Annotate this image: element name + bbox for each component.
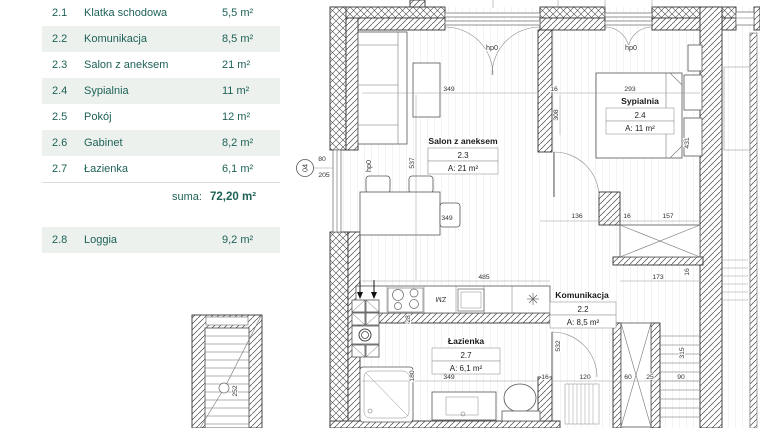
dim-label: 16 bbox=[684, 268, 691, 276]
dim-label: 180 bbox=[409, 370, 416, 382]
kitchen-counter bbox=[356, 286, 550, 313]
dim-label: 349 bbox=[443, 374, 455, 381]
room-no: 2.4 bbox=[634, 111, 646, 120]
window-top-right bbox=[736, 12, 754, 25]
marker-label: 04 bbox=[301, 164, 310, 172]
dim-label: 25 bbox=[646, 374, 654, 381]
dim-label: 485 bbox=[478, 274, 490, 281]
dim-label: 173 bbox=[652, 274, 664, 281]
dim-label: 16 bbox=[541, 374, 549, 381]
section-marker: 04 bbox=[297, 160, 314, 177]
nightstand bbox=[684, 75, 702, 110]
dim-label: 16 bbox=[550, 86, 558, 93]
vanity-sink bbox=[432, 392, 496, 420]
floor-plan-drawing: 252 04 80 205 537 349 16 293 bbox=[0, 0, 760, 428]
dim-label: 308 bbox=[553, 109, 560, 121]
room-area: A: 11 m² bbox=[625, 124, 655, 133]
dim-label: 80 bbox=[318, 156, 326, 163]
room-no: 2.2 bbox=[577, 305, 589, 314]
dim-label: 431 bbox=[684, 137, 691, 149]
dim-label: 349 bbox=[441, 215, 453, 222]
room-area: A: 6,1 m² bbox=[450, 364, 483, 373]
dim-label: 532 bbox=[555, 340, 562, 352]
dim-label: 60 bbox=[624, 374, 632, 381]
window-height-label: hp0 bbox=[364, 160, 373, 172]
dim-label: 293 bbox=[624, 86, 636, 93]
dim-label: 90 bbox=[677, 374, 685, 381]
room-name: Łazienka bbox=[448, 336, 485, 346]
dim-label: 157 bbox=[662, 213, 674, 220]
room-name: Salon z aneksem bbox=[428, 136, 498, 146]
staircase-block: 252 bbox=[192, 315, 262, 428]
dim-label: 252 bbox=[232, 385, 239, 397]
wardrobe bbox=[620, 225, 700, 257]
room-area: A: 21 m² bbox=[448, 164, 479, 173]
window-height-label: hp0 bbox=[486, 43, 498, 52]
shower bbox=[360, 367, 413, 422]
dim-label: 136 bbox=[571, 213, 583, 220]
room-no: 2.7 bbox=[460, 351, 472, 360]
nightstand bbox=[684, 118, 702, 156]
radiator-icon bbox=[565, 384, 599, 424]
dim-label: 349 bbox=[443, 86, 455, 93]
dim-label: 16 bbox=[623, 213, 631, 220]
sofa bbox=[358, 32, 407, 144]
room-area: A: 8,5 m² bbox=[567, 318, 600, 327]
room-name: Sypialnia bbox=[621, 96, 659, 106]
dim-label: 120 bbox=[579, 374, 591, 381]
dim-label: 537 bbox=[409, 157, 416, 169]
sink-label: ZM bbox=[436, 295, 446, 304]
room-label-salon: Salon z aneksem 2.3 A: 21 m² bbox=[428, 136, 498, 174]
room-no: 2.3 bbox=[457, 151, 469, 160]
shelf bbox=[688, 45, 702, 71]
dim-label: 315 bbox=[679, 347, 686, 359]
window-left bbox=[333, 150, 341, 232]
dim-label: 28 bbox=[405, 315, 412, 323]
floorplan-page: 2.1 Klatka schodowa 5,5 m² 2.2 Komunikac… bbox=[0, 0, 760, 428]
dim-label: 205 bbox=[318, 172, 330, 179]
tv-cabinet bbox=[413, 63, 440, 117]
window-height-label: hp0 bbox=[625, 43, 637, 52]
room-name: Komunikacja bbox=[555, 290, 609, 300]
room-label-komunikacja: Komunikacja 2.2 A: 8,5 m² bbox=[550, 290, 616, 328]
